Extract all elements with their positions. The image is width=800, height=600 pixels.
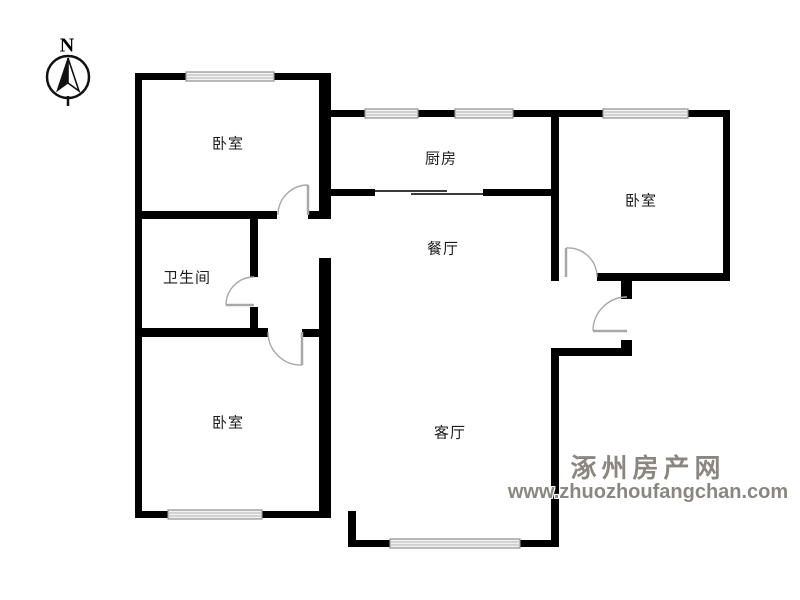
door (268, 332, 302, 365)
door (593, 297, 627, 331)
wall (551, 348, 632, 356)
door (278, 185, 308, 215)
wall (621, 281, 632, 299)
wall (135, 73, 186, 80)
floor-plan: 卧室 厨房 卧室 餐厅 卫生间 卧室 客厅 N 涿州房产网 www.zhuozh… (0, 0, 800, 600)
wall (135, 73, 142, 518)
wall (483, 189, 559, 196)
wall (250, 211, 258, 277)
window (365, 109, 418, 118)
wall (723, 110, 730, 281)
north-arrow-icon (68, 58, 79, 91)
window (390, 539, 520, 548)
watermark: 涿州房产网 www.zhuozhoufangchan.com (508, 455, 788, 503)
door (566, 248, 597, 277)
window (168, 510, 262, 519)
wall (418, 110, 455, 117)
wall (319, 258, 331, 518)
watermark-site-url: www.zhuozhoufangchan.com (508, 482, 788, 503)
floor-plan-drawing (0, 0, 800, 600)
wall (348, 511, 356, 547)
wall (551, 348, 559, 547)
north-arrow-icon (57, 58, 68, 91)
room-label-dining-room: 餐厅 (427, 238, 459, 259)
door (226, 277, 254, 305)
wall (135, 328, 268, 337)
room-label-bedroom-top-left: 卧室 (212, 133, 244, 154)
wall (331, 110, 365, 117)
watermark-site-name: 涿州房产网 (508, 455, 788, 482)
room-label-bedroom-right: 卧室 (625, 190, 657, 211)
doors (226, 185, 627, 365)
room-label-bedroom-bottom-left: 卧室 (212, 412, 244, 433)
room-label-bathroom: 卫生间 (163, 267, 211, 288)
wall (551, 110, 559, 281)
room-label-living-room: 客厅 (434, 422, 466, 443)
window (603, 109, 688, 118)
sliding-door (375, 191, 483, 194)
wall (250, 307, 258, 337)
wall (319, 73, 331, 218)
wall (331, 189, 375, 196)
window (455, 109, 513, 118)
window (186, 72, 274, 81)
wall (597, 273, 730, 281)
room-label-kitchen: 厨房 (425, 148, 457, 169)
compass-north-label: N (60, 35, 74, 58)
wall (621, 340, 632, 356)
north-compass (47, 56, 89, 106)
